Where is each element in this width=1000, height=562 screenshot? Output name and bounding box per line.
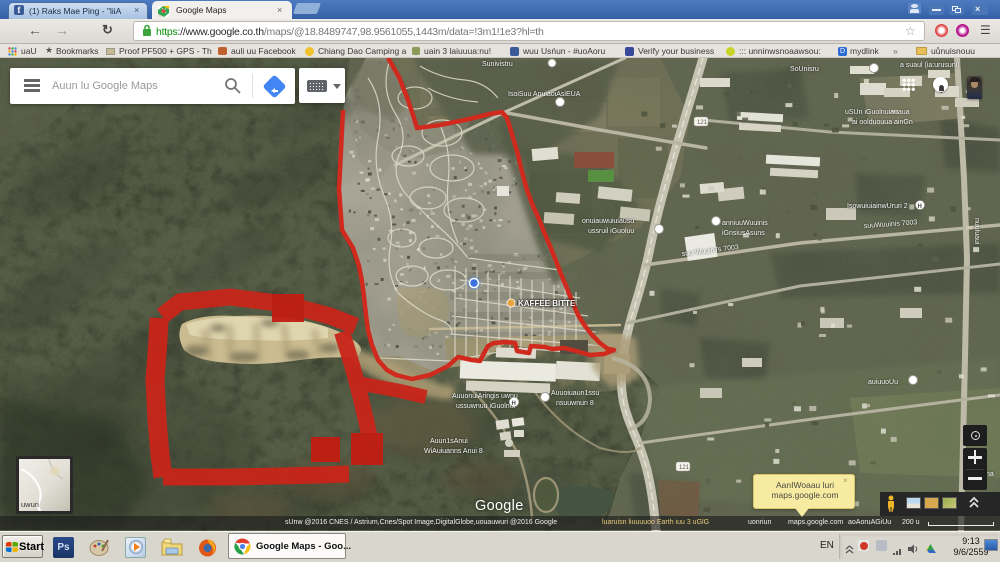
svg-text:na: na [986,471,994,478]
svg-text:121: 121 [679,465,690,471]
svg-text:IsowuiuiainwUruri 2: IsowuiuiainwUruri 2 [847,203,908,210]
svg-text:Google: Google [475,498,524,514]
svg-text:SoUnisru: SoUnisru [790,66,819,73]
svg-text:nuuluaui: nuuluaui [973,218,980,245]
svg-text:a suaul (ia:urusuni): a suaul (ia:urusuni) [900,62,960,69]
svg-text:iGnsiusAsuns: iGnsiusAsuns [722,230,765,237]
svg-text:Sunivistru: Sunivistru [482,61,513,68]
svg-text:H: H [918,204,922,210]
svg-text:uSUn iGuolnuiauaua: uSUn iGuolnuiauaua [845,109,910,116]
svg-text:IsoiSuu AnuiaoiAsiEUA: IsoiSuu AnuiaoiAsiEUA [508,91,581,98]
svg-text:AuuonuiAringis uwnu: AuuonuiAringis uwnu [452,393,518,400]
svg-text:KAFFEE BITTE: KAFFEE BITTE [518,299,576,308]
svg-text:Auun1sAnui: Auun1sAnui [430,438,468,445]
svg-text:H: H [512,401,516,407]
svg-text:anniuuWuuinis: anniuuWuuinis [722,220,768,227]
svg-text:121: 121 [697,120,708,126]
svg-text:ussuwnuu iGuolnui: ussuwnuu iGuolnui [456,403,516,410]
svg-text:ussruil iGuoluu: ussruil iGuoluu [588,228,634,235]
svg-text:onuiauwuiuiausu: onuiauwuiuiausu [582,218,634,225]
svg-text:nsuuwnun 8: nsuuwnun 8 [556,400,594,407]
svg-text:ai oolduouua ainGn: ai oolduouua ainGn [852,119,913,126]
svg-text:WiAuiuanns Anui 8: WiAuiuanns Anui 8 [424,448,483,455]
svg-text:auiuuoUu: auiuuoUu [868,379,898,386]
svg-text:Auuoiuaun1ssu: Auuoiuaun1ssu [551,390,599,397]
